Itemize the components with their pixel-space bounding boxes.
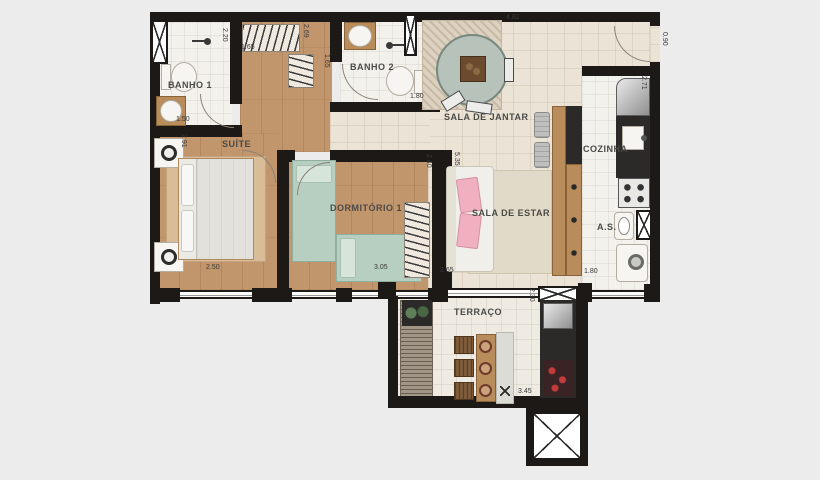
bar-cabinet	[566, 106, 582, 164]
shower-head-icon-banho2	[386, 42, 393, 49]
dim-cozinha-depth: 2.71	[640, 76, 647, 90]
wall-banho1-right	[230, 12, 242, 104]
plate-icon-2	[479, 362, 492, 375]
wall-cozinha-top	[582, 66, 660, 76]
wall-terraco-left	[388, 296, 398, 406]
single-bed-2-pillow	[340, 238, 356, 278]
dim-banho2-width: 1.80	[410, 93, 424, 100]
room-label-terraco: TERRAÇO	[454, 307, 502, 317]
utensils-icon	[500, 386, 510, 396]
elevator-shaft	[526, 406, 588, 466]
plate-icon-3	[479, 384, 492, 397]
planter-bench	[402, 300, 432, 326]
bar-stool-1	[534, 112, 550, 138]
sink-icon-banho2	[348, 25, 372, 47]
dim-dorm-width: 3.05	[374, 264, 388, 271]
terrace-chair-2	[454, 359, 474, 377]
bar-counter-lower	[566, 164, 582, 276]
lamp-icon-2	[161, 249, 177, 265]
dim-hall-depth: 2.69	[302, 24, 309, 38]
terraco-slider-door	[448, 288, 538, 298]
sofa-cushion-2	[456, 213, 482, 249]
duct-shaft-as	[636, 210, 652, 240]
dim-banho1-width: 1.50	[176, 116, 190, 123]
wall-suite-dorm	[277, 150, 289, 302]
room-label-dormitorio1: DORMITÓRIO 1	[330, 203, 402, 213]
laundry-tank-basin	[618, 217, 630, 235]
dining-chair-1	[504, 58, 514, 82]
dim-suite-depth: 2.91	[180, 134, 187, 148]
bar-counter	[552, 106, 566, 276]
terrace-chair-3	[454, 382, 474, 400]
wall-bottom-1	[150, 288, 180, 302]
faucet-icon	[641, 135, 647, 141]
entry-opening	[650, 26, 660, 62]
suite-window-2	[292, 290, 336, 299]
dim-sala-width: 2.65	[440, 267, 454, 274]
dim-sala-depth: 5.35	[453, 152, 460, 166]
wall-right-top	[650, 12, 660, 26]
wall-banho2-left	[330, 12, 342, 62]
sofa-back	[447, 167, 456, 271]
as-window	[592, 290, 644, 299]
wall-bottom-6	[644, 284, 660, 302]
dim-dorm-depth: 2.40	[425, 154, 432, 168]
duct-shaft-topleft	[151, 20, 168, 64]
dim-suite-width: 2.50	[206, 264, 220, 271]
wall-bottom-2	[252, 288, 292, 302]
washer-door	[628, 254, 644, 270]
duct-shaft-banho2	[404, 14, 417, 56]
suite-window-1	[180, 290, 252, 299]
closet-hangers-icon-2	[288, 54, 314, 88]
grill-icon	[543, 303, 573, 329]
room-label-cozinha: COZINHA	[583, 144, 628, 154]
terrace-chair-1	[454, 336, 474, 354]
lamp-icon-1	[161, 145, 177, 161]
dim-banho2-depth: 1.65	[323, 54, 330, 68]
dim-social-top-width: 4.82	[506, 14, 520, 21]
floor-plan: BANHO 1 BANHO 2 SUÍTE DORMITÓRIO 1 SALA …	[0, 0, 820, 480]
bed-pillow-1	[181, 164, 194, 206]
room-label-banho2: BANHO 2	[350, 62, 394, 72]
wardrobe-hangers-icon	[404, 202, 430, 278]
room-label-sala-estar: SALA DE ESTAR	[472, 208, 550, 218]
bed-pillow-2	[181, 210, 194, 252]
dim-terraco-width: 3.45	[518, 388, 532, 395]
room-label-sala-jantar: SALA DE JANTAR	[444, 112, 529, 122]
dim-closet-width: 1.65	[241, 44, 255, 51]
stove-icon	[618, 178, 650, 208]
wall-terraco-right	[576, 296, 588, 398]
shower-head-icon	[204, 38, 211, 45]
dim-banho1-depth: 2.20	[221, 28, 228, 42]
flower-pot-icon	[543, 360, 573, 396]
wall-bottom-3	[336, 288, 352, 302]
bar-stool-2	[534, 142, 550, 168]
room-label-banho1: BANHO 1	[168, 80, 212, 90]
dim-as-width: 1.80	[584, 268, 598, 275]
room-label-as: A.S.	[597, 222, 617, 232]
fruit-bowl-icon	[460, 56, 486, 82]
wall-dorm-top-b	[330, 150, 440, 162]
dim-terraco-depth: 2.30	[528, 288, 535, 302]
room-label-suite: SUÍTE	[222, 139, 251, 149]
wall-right-main	[650, 70, 660, 302]
dim-entry-door: 0.90	[661, 32, 668, 46]
plate-icon-1	[479, 340, 492, 353]
